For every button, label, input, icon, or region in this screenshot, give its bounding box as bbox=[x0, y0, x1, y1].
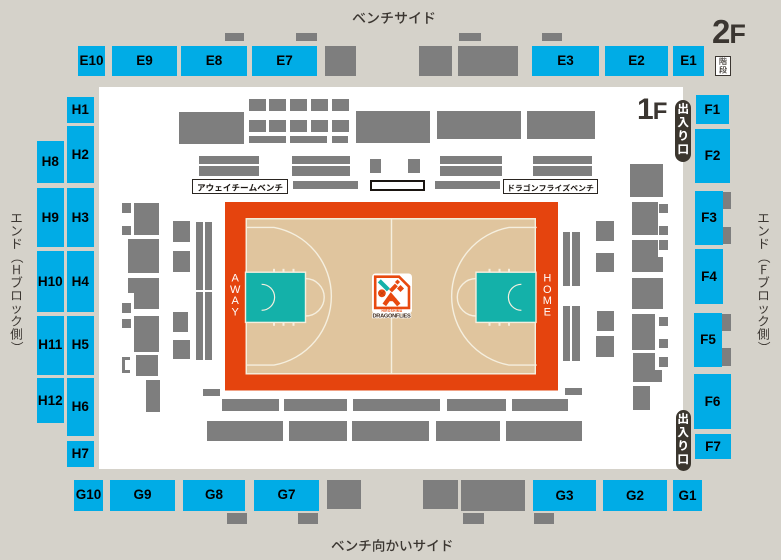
svg-text:A: A bbox=[231, 273, 239, 285]
svg-text:E: E bbox=[543, 306, 550, 318]
svg-text:A: A bbox=[231, 295, 239, 307]
svg-text:O: O bbox=[543, 284, 552, 296]
svg-text:W: W bbox=[230, 284, 241, 296]
svg-text:H: H bbox=[543, 273, 551, 285]
svg-text:HIROSHIMA: HIROSHIMA bbox=[381, 309, 402, 313]
svg-text:Y: Y bbox=[231, 306, 239, 318]
svg-text:M: M bbox=[542, 295, 551, 307]
svg-text:DRAGONFLIES: DRAGONFLIES bbox=[372, 314, 411, 320]
